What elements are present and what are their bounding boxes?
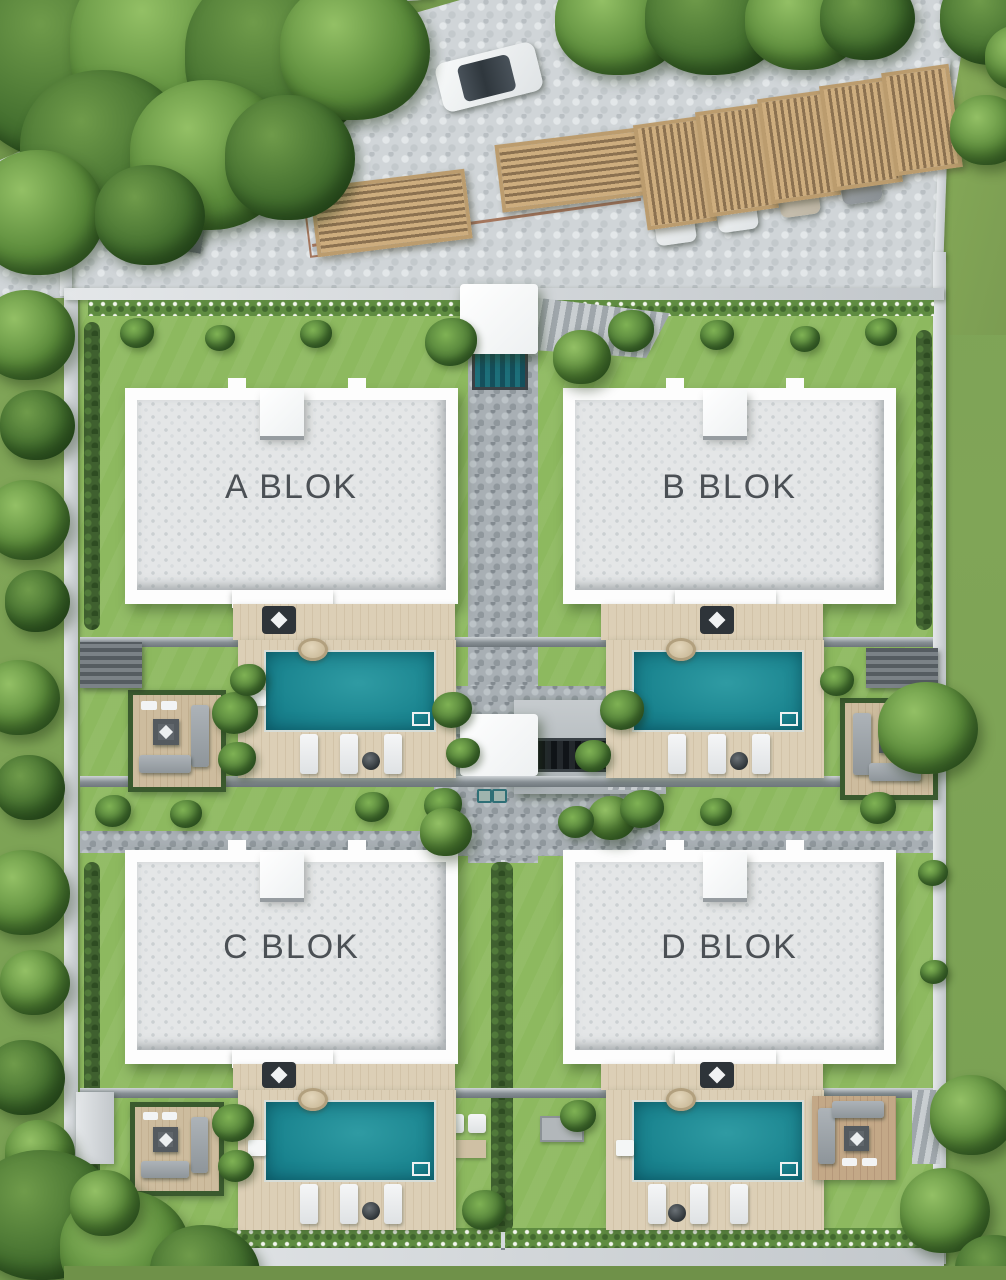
tree: [0, 660, 60, 735]
block-b-skylight: [703, 390, 747, 436]
pool-d-pad: [616, 1140, 634, 1156]
tree: [0, 950, 70, 1015]
side-canopy-a: [80, 642, 142, 688]
patio-cushion: [162, 1112, 177, 1120]
patio-fire-table: [153, 719, 179, 745]
sun-lounger: [384, 734, 402, 774]
block-d-dining-set: [700, 1062, 734, 1088]
roof-step: [786, 840, 804, 852]
roof-step: [228, 840, 246, 852]
sun-lounger: [300, 734, 318, 774]
roof-step: [348, 378, 366, 390]
sun-lounger: [752, 734, 770, 774]
block-b-label: B BLOK: [563, 468, 896, 507]
patio-d: [812, 1096, 896, 1180]
roof-step: [786, 378, 804, 390]
pool-c: [264, 1100, 436, 1182]
tree: [553, 330, 611, 384]
patio-cushion: [842, 1158, 857, 1166]
sun-lounger: [300, 1184, 318, 1224]
tree: [0, 1040, 65, 1115]
sun-lounger: [690, 1184, 708, 1224]
tree: [5, 570, 70, 632]
tree: [0, 850, 70, 935]
fire-bowl: [668, 1204, 686, 1222]
hedge-left-upper: [84, 322, 100, 630]
tree: [0, 755, 65, 820]
tree: [0, 390, 75, 460]
sun-lounger: [708, 734, 726, 774]
sun-lounger: [730, 1184, 748, 1224]
hot-tub-c: [298, 1088, 328, 1111]
sun-lounger: [340, 734, 358, 774]
tree: [878, 682, 978, 774]
tree: [225, 95, 355, 220]
block-d-skylight: [703, 852, 747, 898]
patio-sofa: [191, 705, 209, 767]
tree: [930, 1075, 1006, 1155]
block-d-building: D BLOK: [563, 850, 896, 1064]
sun-lounger: [668, 734, 686, 774]
site-plan-render: A BLOK B BLOK: [0, 0, 1006, 1280]
patio-sofa: [141, 1161, 189, 1178]
block-b-dining-set: [700, 606, 734, 634]
hot-tub-b: [666, 638, 696, 661]
outside-grass-bottom: [64, 1266, 1006, 1280]
sun-lounger: [340, 1184, 358, 1224]
flower-hedge-top-left: [88, 300, 460, 316]
patio-cushion: [143, 1112, 158, 1120]
roof-step: [666, 378, 684, 390]
block-c-label: C BLOK: [125, 928, 458, 967]
patio-cushion: [161, 701, 177, 710]
sun-lounger: [384, 1184, 402, 1224]
patio-cushion: [862, 1158, 877, 1166]
pool-c-pad: [248, 1140, 266, 1156]
utility-bin: [492, 789, 507, 803]
block-a-skylight: [260, 390, 304, 436]
roof-step: [348, 840, 366, 852]
tree: [95, 165, 205, 265]
block-d-label: D BLOK: [563, 928, 896, 967]
sunbed: [468, 1114, 486, 1133]
tree: [420, 808, 472, 856]
block-a-dining-set: [262, 606, 296, 634]
patio-sofa: [139, 755, 191, 773]
patio-cushion: [141, 701, 157, 710]
divider-hedge: [491, 862, 513, 1232]
utility-bin: [477, 789, 492, 803]
block-a-label: A BLOK: [125, 468, 458, 507]
side-ramp-c: [76, 1092, 114, 1164]
block-c-dining-set: [262, 1062, 296, 1088]
tree: [0, 480, 70, 560]
car-cabin: [457, 53, 517, 102]
entrance-water-feature: [472, 348, 528, 390]
sun-lounger: [648, 1184, 666, 1224]
fire-bowl: [730, 752, 748, 770]
pool-b: [632, 650, 804, 732]
pool-c-rail: [412, 1162, 430, 1176]
block-a-building: A BLOK: [125, 388, 458, 604]
hot-tub-d: [666, 1088, 696, 1111]
fire-bowl: [362, 1202, 380, 1220]
patio-fire-table: [153, 1127, 178, 1152]
patio-fire-table: [844, 1126, 869, 1151]
pool-d-rail: [780, 1162, 798, 1176]
roof-step: [228, 378, 246, 390]
roof-step: [666, 840, 684, 852]
fire-bowl: [362, 752, 380, 770]
block-c-skylight: [260, 852, 304, 898]
hedge-right-upper: [916, 330, 932, 630]
sunbed-mat: [452, 1140, 486, 1158]
patio-sofa: [191, 1117, 208, 1173]
pool-a-rail: [412, 712, 430, 726]
patio-c: [130, 1102, 224, 1196]
tree: [950, 95, 1006, 165]
block-b-building: B BLOK: [563, 388, 896, 604]
patio-a: [128, 690, 226, 792]
patio-sofa: [832, 1101, 884, 1118]
hot-tub-a: [298, 638, 328, 661]
pool-d: [632, 1100, 804, 1182]
pool-b-rail: [780, 712, 798, 726]
block-c-building: C BLOK: [125, 850, 458, 1064]
palm-tree: [70, 1170, 140, 1236]
pool-a: [264, 650, 436, 732]
